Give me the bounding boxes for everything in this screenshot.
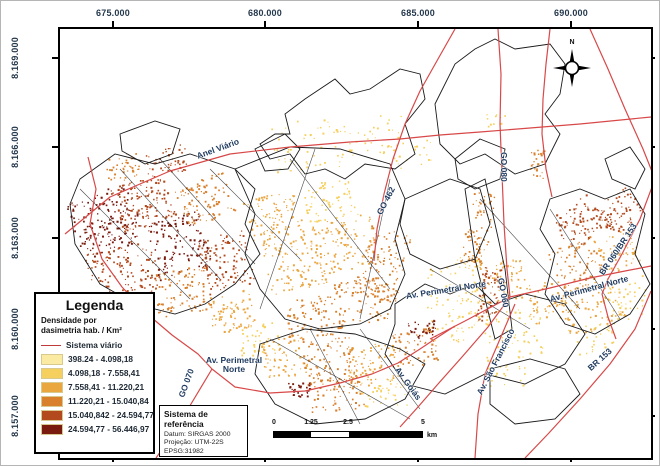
reference-projection: Projeção: UTM-22S xyxy=(164,439,243,447)
reference-system-box: Sistema de referência Datum: SIRGAS 2000… xyxy=(159,405,248,457)
class-color-swatch xyxy=(41,424,63,435)
y-axis-label: 8.160.000 xyxy=(10,308,20,350)
class-color-swatch xyxy=(41,410,63,421)
scale-segment xyxy=(274,432,311,437)
road-label-perimetral-south: Av. Perimetral Norte xyxy=(204,356,264,375)
legend-item-road: Sistema viário xyxy=(41,338,148,352)
compass-north-label: N xyxy=(569,39,574,46)
y-axis-label: 8.166.000 xyxy=(10,126,20,168)
scale-tick-label: 5 xyxy=(421,419,425,426)
legend-subtitle-line1: Densidade por xyxy=(41,316,97,325)
legend-item-label: 15.040,842 - 24.594,77 xyxy=(68,410,154,420)
legend-item-class: 15.040,842 - 24.594,77 xyxy=(41,408,148,422)
legend-item-label: 24.594,77 - 56.446,97 xyxy=(68,424,149,434)
x-axis-label: 690.000 xyxy=(536,8,606,18)
legend-item-class: 24.594,77 - 56.446,97 xyxy=(41,422,148,436)
scale-bar: 0 1.25 2.5 5 km xyxy=(273,419,433,445)
legend-item-class: 4.098,18 - 7.558,41 xyxy=(41,366,148,380)
road-line-swatch xyxy=(41,345,61,346)
map-figure: { "axes": { "x_labels": ["675.000", "680… xyxy=(0,0,660,466)
legend-title: Legenda xyxy=(41,297,148,313)
scale-bar-segments xyxy=(273,431,423,438)
class-color-swatch xyxy=(41,354,63,365)
legend-item-label: 4.098,18 - 7.558,41 xyxy=(68,368,140,378)
x-axis-label: 675.000 xyxy=(78,8,148,18)
scale-tick-label: 0 xyxy=(272,419,276,426)
x-axis-label: 680.000 xyxy=(230,8,300,18)
legend-box: Legenda Densidade por dasimetria hab. / … xyxy=(34,292,155,454)
class-color-swatch xyxy=(41,396,63,407)
x-axis-label: 685.000 xyxy=(383,8,453,18)
legend-item-label: 11.220,21 - 15.040,84 xyxy=(68,396,149,406)
class-color-swatch xyxy=(41,368,63,379)
reference-datum: Datum: SIRGAS 2000 xyxy=(164,431,243,439)
scale-tick-label: 1.25 xyxy=(304,419,318,426)
compass-rose: N xyxy=(549,39,595,89)
legend-item-class: 398.24 - 4.098,18 xyxy=(41,352,148,366)
scale-unit: km xyxy=(427,432,437,439)
legend-subtitle-line2: dasimetria hab. / Km² xyxy=(41,326,122,335)
legend-item-label: Sistema viário xyxy=(66,340,122,350)
legend-item-label: 7.558,41 - 11.220,21 xyxy=(68,382,144,392)
scale-tick-label: 2.5 xyxy=(343,419,353,426)
y-axis-label: 8.157.000 xyxy=(10,395,20,437)
scale-segment xyxy=(311,432,349,437)
reference-epsg: EPSG:31982 xyxy=(164,448,243,456)
legend-item-class: 11.220,21 - 15.040,84 xyxy=(41,394,148,408)
legend-item-label: 398.24 - 4.098,18 xyxy=(68,354,133,364)
legend-item-class: 7.558,41 - 11.220,21 xyxy=(41,380,148,394)
class-color-swatch xyxy=(41,382,63,393)
y-axis-label: 8.163.000 xyxy=(10,217,20,259)
compass-icon xyxy=(549,47,595,89)
scale-segment xyxy=(349,432,422,437)
legend-subtitle: Densidade por dasimetria hab. / Km² xyxy=(41,316,148,335)
reference-title: Sistema de referência xyxy=(164,409,243,429)
road-label-go-080: GO 080 xyxy=(499,152,509,182)
y-axis-label: 8.169.000 xyxy=(10,37,20,79)
